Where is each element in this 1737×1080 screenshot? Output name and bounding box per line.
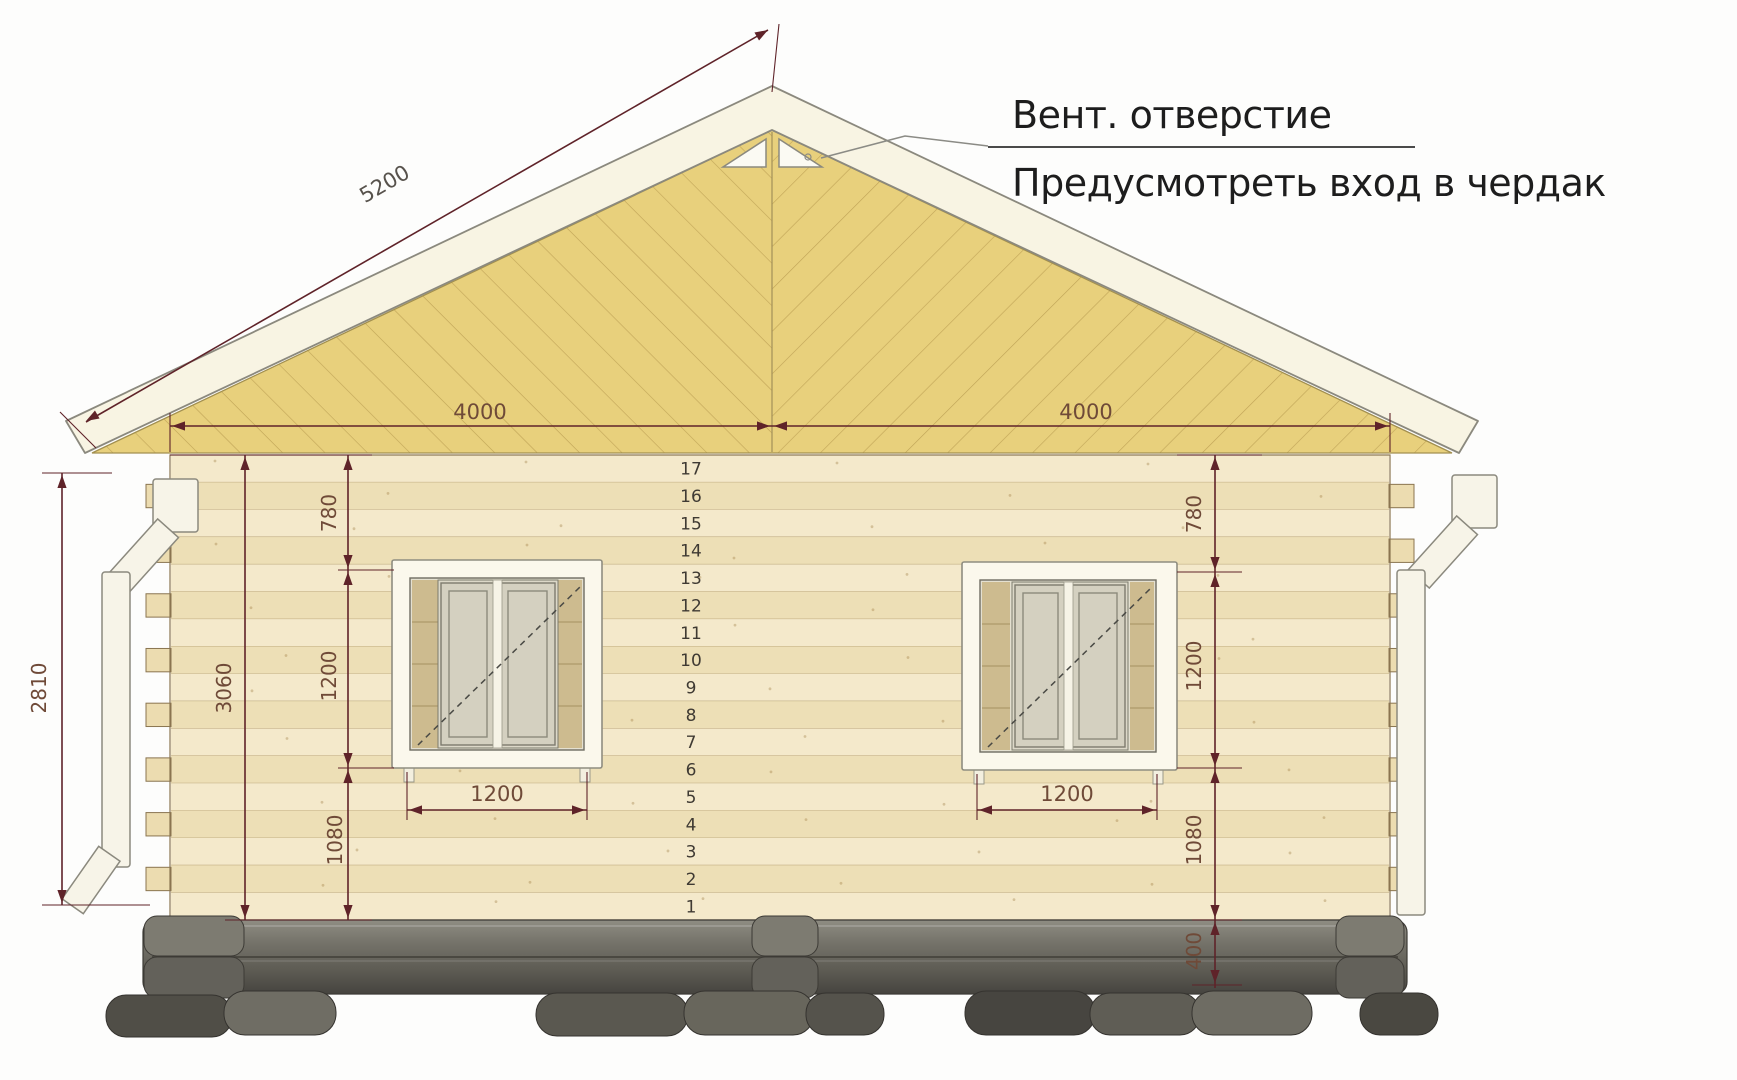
log-row — [171, 482, 1389, 509]
wood-knot — [1009, 494, 1012, 497]
log-row-number: 8 — [686, 706, 697, 726]
corner-notch-left — [146, 594, 171, 617]
wood-knot — [353, 527, 356, 530]
wood-knot — [702, 897, 705, 900]
wood-knot — [250, 606, 253, 609]
wood-knot — [1288, 768, 1291, 771]
log-row — [171, 619, 1389, 646]
wood-knot — [667, 850, 670, 853]
wood-knot — [631, 719, 634, 722]
wood-knot — [459, 769, 462, 772]
dim-wall-height: 3060 — [212, 663, 236, 714]
wood-knot — [907, 656, 910, 659]
dim-foundation-height: 400 — [1182, 932, 1206, 970]
log-row — [171, 564, 1389, 591]
wood-knot — [836, 462, 839, 465]
wood-knot — [1217, 574, 1220, 577]
foundation — [106, 916, 1438, 1037]
facade-drawing: 1716151413121110987654321 — [0, 0, 1737, 1080]
foundation-joint-right — [1336, 916, 1404, 998]
wood-knot — [734, 624, 737, 627]
log-row-number: 5 — [686, 788, 697, 808]
annotation-line1: Вент. отверстие — [1012, 93, 1331, 137]
window-right-mullion — [1064, 582, 1073, 750]
dim-right-below-window: 1080 — [1182, 815, 1206, 866]
window-right — [962, 562, 1177, 784]
wood-knot — [1013, 898, 1016, 901]
corner-notch-left — [146, 867, 171, 890]
foundation-joint-left — [144, 916, 244, 998]
wood-knot — [1147, 463, 1150, 466]
wood-knot — [388, 575, 391, 578]
log-row — [171, 729, 1389, 756]
corner-notch-left — [146, 703, 171, 726]
log-row-number: 3 — [686, 843, 697, 863]
foundation-cross-logs — [106, 991, 1438, 1037]
wood-knot — [906, 573, 909, 576]
log-row — [171, 510, 1389, 537]
wood-knot — [733, 557, 736, 560]
wood-knot — [356, 849, 359, 852]
log-row-number: 1 — [686, 897, 697, 917]
wood-knot — [1116, 819, 1119, 822]
dim-left-below-window: 1080 — [323, 815, 347, 866]
wood-knot — [322, 884, 325, 887]
wood-knot — [495, 900, 498, 903]
wood-knot — [214, 460, 217, 463]
wood-knot — [1044, 542, 1047, 545]
corner-notch-right — [1389, 539, 1414, 562]
window-left — [392, 560, 602, 782]
wood-knot — [285, 654, 288, 657]
dim-roof-slope: 5200 — [355, 160, 413, 208]
wood-knot — [525, 461, 528, 464]
wood-knot — [943, 803, 946, 806]
wood-knot — [805, 818, 808, 821]
wood-knot — [560, 524, 563, 527]
log-row — [171, 783, 1389, 810]
wood-knot — [1323, 816, 1326, 819]
dim-right-above-window: 780 — [1182, 495, 1206, 533]
corner-notch-left — [146, 648, 171, 671]
wood-knot — [770, 770, 773, 773]
wood-knot — [872, 608, 875, 611]
wood-knot — [840, 882, 843, 885]
corner-notch-left — [146, 813, 171, 836]
wood-knot — [942, 720, 945, 723]
wood-knot — [286, 737, 289, 740]
log-row — [171, 674, 1389, 701]
log-row-number: 12 — [680, 596, 702, 616]
dim-left-window-width: 1200 — [470, 782, 523, 806]
wood-knot — [871, 525, 874, 528]
log-row-number: 11 — [680, 624, 702, 644]
log-row-number: 6 — [686, 761, 697, 781]
log-row-number: 17 — [680, 460, 702, 480]
log-row-number: 9 — [686, 679, 697, 699]
log-row — [171, 592, 1389, 619]
wood-knot — [1324, 899, 1327, 902]
wood-knot — [632, 802, 635, 805]
wood-knot — [1218, 657, 1221, 660]
wood-knot — [978, 851, 981, 854]
log-row — [171, 865, 1389, 892]
wood-knot — [321, 801, 324, 804]
log-row-number: 4 — [686, 815, 697, 835]
drawing-canvas: 1716151413121110987654321 — [0, 0, 1737, 1080]
wood-knot — [1150, 800, 1153, 803]
log-row — [171, 455, 1389, 482]
wood-knot — [804, 735, 807, 738]
log-row — [171, 756, 1389, 783]
log-row — [171, 646, 1389, 673]
dim-left-above-window: 780 — [317, 494, 341, 532]
dim-top-right-span: 4000 — [1059, 400, 1112, 424]
log-row-number: 14 — [680, 542, 702, 562]
wood-knot — [1151, 883, 1154, 886]
log-row — [171, 537, 1389, 564]
log-row-number: 2 — [686, 870, 697, 890]
log-row — [171, 811, 1389, 838]
dim-facade-height: 2810 — [27, 663, 51, 714]
log-row-number: 13 — [680, 569, 702, 589]
annotation-line2: Предусмотреть вход в чердак — [1012, 161, 1606, 205]
log-row-number: 15 — [680, 514, 702, 534]
log-row-number: 7 — [686, 733, 697, 753]
log-row — [171, 838, 1389, 865]
log-row-number: 10 — [680, 651, 702, 671]
wood-knot — [387, 492, 390, 495]
wood-knot — [251, 689, 254, 692]
dim-left-window-height: 1200 — [317, 651, 341, 702]
wood-knot — [215, 543, 218, 546]
wood-knot — [1289, 852, 1292, 855]
corner-notch-left — [146, 758, 171, 781]
wood-knot — [1253, 721, 1256, 724]
wood-knot — [1320, 495, 1323, 498]
wood-knot — [494, 817, 497, 820]
wood-knot — [1252, 638, 1255, 641]
log-row — [171, 701, 1389, 728]
dim-top-left-span: 4000 — [453, 400, 506, 424]
foundation-joint-center — [752, 916, 818, 998]
dim-right-window-height: 1200 — [1182, 641, 1206, 692]
log-row-number: 16 — [680, 487, 702, 507]
corner-notch-right — [1389, 484, 1414, 507]
wood-knot — [529, 881, 532, 884]
dim-right-window-width: 1200 — [1040, 782, 1093, 806]
wood-knot — [526, 544, 529, 547]
wood-knot — [769, 687, 772, 690]
